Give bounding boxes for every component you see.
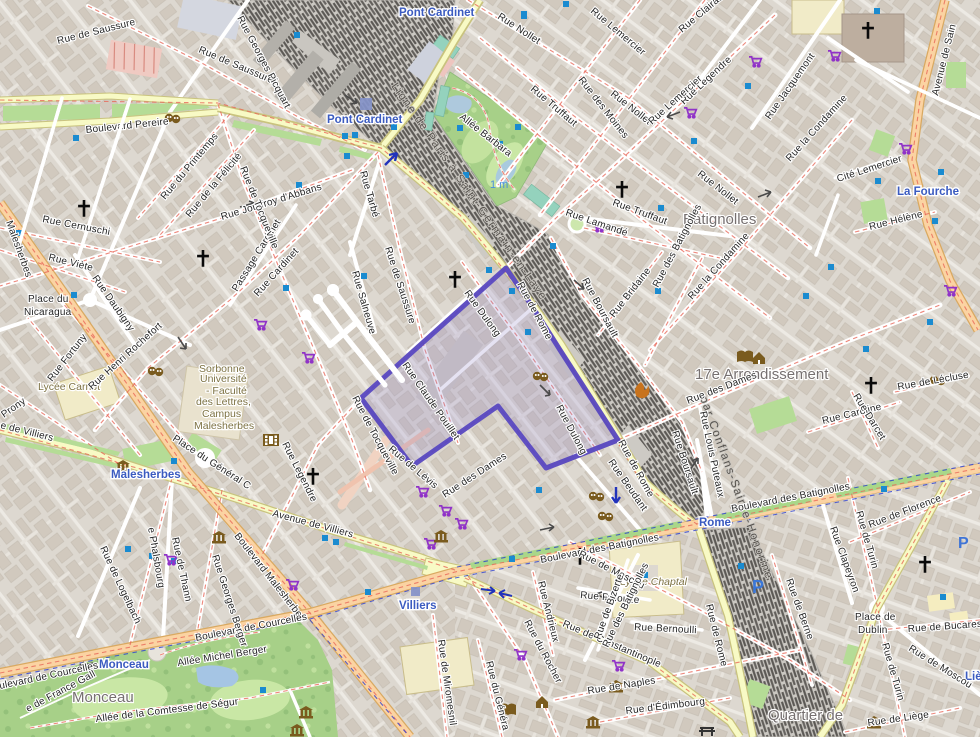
- svg-text:La Fourche: La Fourche: [897, 186, 959, 198]
- svg-text:Place du: Place du: [28, 294, 69, 305]
- svg-text:Campus: Campus: [202, 408, 241, 420]
- svg-text:Villiers: Villiers: [399, 600, 437, 612]
- svg-text:17e Arrondissement: 17e Arrondissement: [695, 366, 829, 383]
- svg-text:P: P: [752, 577, 764, 597]
- svg-text:Monceau: Monceau: [99, 659, 149, 671]
- svg-text:Monceau: Monceau: [72, 689, 134, 706]
- svg-text:Malesherbes: Malesherbes: [194, 420, 254, 432]
- svg-text:1 m: 1 m: [490, 179, 508, 191]
- svg-text:Pont Cardinet: Pont Cardinet: [399, 7, 475, 19]
- svg-text:Place de: Place de: [855, 612, 896, 623]
- svg-text:Quartier de: Quartier de: [768, 707, 843, 724]
- svg-text:Rome: Rome: [699, 517, 731, 529]
- svg-text:P: P: [958, 535, 969, 552]
- svg-text:Malesherbes: Malesherbes: [111, 469, 181, 481]
- svg-text:Pont Cardinet: Pont Cardinet: [327, 114, 403, 126]
- svg-text:Université: Université: [200, 373, 247, 385]
- svg-text:Dublin: Dublin: [858, 625, 888, 636]
- svg-text:Nicaragua: Nicaragua: [24, 307, 72, 318]
- svg-text:des Lettres,: des Lettres,: [196, 396, 251, 408]
